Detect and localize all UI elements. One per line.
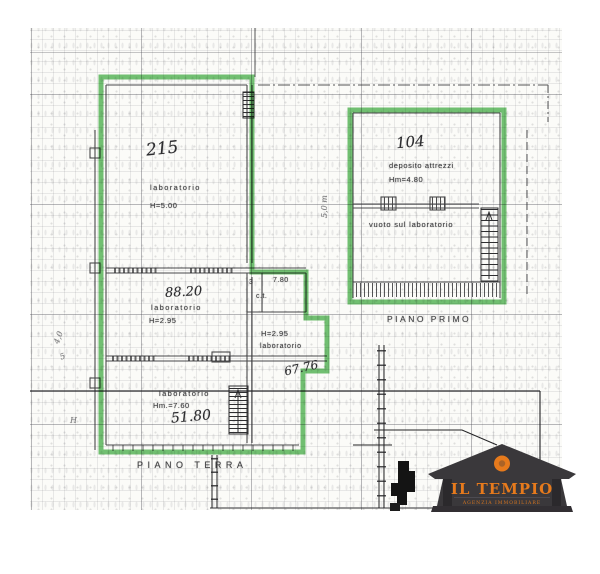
logo-subtitle: AGENZIA IMMOBILIARE: [462, 500, 541, 506]
margin-mark-3: H: [70, 416, 77, 425]
room-label-right: laboratorio: [260, 343, 302, 350]
ct-room-label: c.t.: [256, 293, 267, 300]
scanned-sheet: [30, 28, 562, 510]
agency-logo: IL TEMPIO AGENZIA IMMOBILIARE: [428, 444, 576, 513]
room-label-main: laboratorio: [150, 183, 201, 192]
floor-label-ground: PIANO TERRA: [137, 460, 247, 470]
logo-base: [431, 506, 573, 512]
logo-column-right: [552, 479, 561, 506]
area-label-first-floor: 104: [395, 132, 425, 152]
side-dimension-label: 5,0 m: [320, 195, 329, 218]
floor-plan-scan-page: { "plan": { "highlight_color": "#5ab85c"…: [0, 0, 600, 574]
floor-label-first: PIANO PRIMO: [387, 314, 471, 324]
ct-room-width: 7.80: [273, 277, 289, 284]
logo-title: IL TEMPIO: [451, 480, 553, 498]
room-label-mid: laboratorio: [151, 303, 202, 312]
logo-temple-icon: IL TEMPIO AGENZIA IMMOBILIARE: [428, 444, 576, 513]
void-label: vuoto sul laboratorio: [369, 220, 453, 229]
area-label-mid: 88.20: [165, 284, 203, 301]
ct-room-number: 3: [249, 279, 253, 286]
room-label-deposito: deposito attrezzi: [389, 161, 454, 170]
room-label-low: laboratorio: [159, 389, 210, 398]
area-label-main: 215: [145, 137, 179, 160]
height-label-right: H=2.95: [261, 329, 288, 338]
height-label-main: H=5.00: [150, 201, 177, 210]
height-label-deposito: Hm=4.80: [389, 175, 423, 184]
height-label-mid: H=2.95: [149, 316, 176, 325]
